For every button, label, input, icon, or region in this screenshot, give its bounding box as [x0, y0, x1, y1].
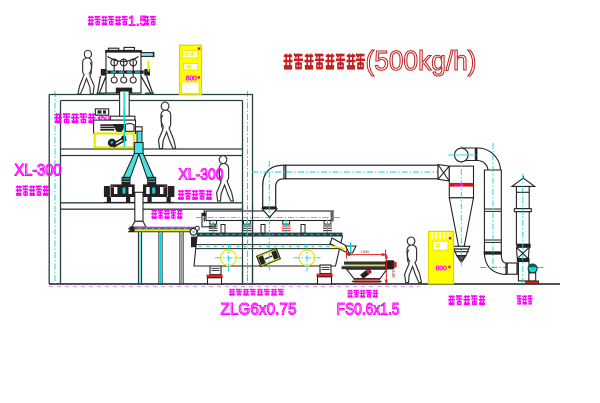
- svg-text:540: 540: [391, 270, 396, 278]
- svg-text:Φ800: Φ800: [454, 182, 465, 187]
- svg-text:XL-300: XL-300: [179, 167, 224, 184]
- svg-text:800: 800: [436, 264, 448, 273]
- svg-text:XL-300: XL-300: [15, 161, 62, 180]
- svg-text:FS0.6x1.5: FS0.6x1.5: [337, 301, 400, 319]
- svg-text:(500kg/h): (500kg/h): [366, 45, 477, 76]
- svg-text:800: 800: [186, 74, 198, 83]
- svg-text:1500: 1500: [361, 249, 371, 254]
- svg-text:ZLG6x0.75: ZLG6x0.75: [221, 300, 297, 319]
